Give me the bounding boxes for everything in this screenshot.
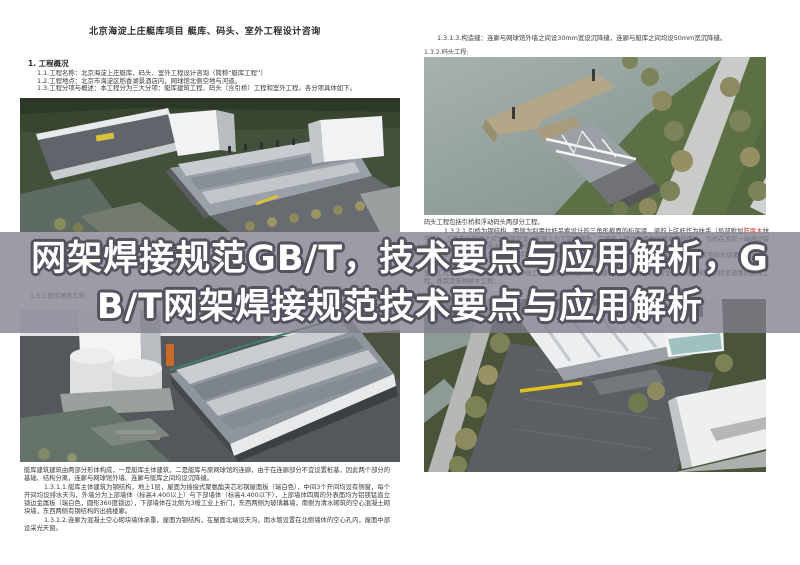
render-aerial-boathouse-site xyxy=(20,98,400,232)
boathouse-description: 艇库建筑建筑由两部分形体构成，一是艇库主体建筑，二是艇库与原网球馆的连廊，由于在… xyxy=(24,467,390,534)
document-viewer: 北京海淀上庄艇库项目 艇库、码头、室外工程设计咨询 1. 工程概况 1.1.工程… xyxy=(0,0,800,565)
overlay-banner: 网架焊接规范GB/T，技术要点与应用解析，G B/T网架焊接规范技术要点与应用解… xyxy=(0,232,800,333)
banner-headline-line2: B/T网架焊接规范技术要点与应用解析 xyxy=(97,283,703,331)
intro-lines: 1.1.工程名称：北京海淀上庄艇库、码头、室外工程设计咨询（简称“艇库工程”） … xyxy=(37,70,387,93)
para-main-building: 1.3.1.1.艇库主体建筑为钢结构，地上1层，屋面为插接式聚氨酯夹芯彩钢屋面板… xyxy=(24,484,390,516)
para-corridor: 1.3.1.2.连廊为混凝土空心砌块墙体承重，屋面为钢结构，在屋面北端设天沟，雨… xyxy=(24,517,390,533)
para-overview: 艇库建筑建筑由两部分形体构成，一是艇库主体建筑，二是艇库与原网球馆的连廊，由于在… xyxy=(24,467,390,483)
render-dock-and-bridge xyxy=(424,57,766,215)
intro-line-scope: 1.3.工程分项与概述：本工程分为三大分项：艇库建筑工程、码头（含引桥）工程和室… xyxy=(37,85,387,93)
label-dock-works: 1.3.2.码头工程: xyxy=(424,47,469,56)
banner-headline-line1: 网架焊接规范GB/T，技术要点与应用解析，G xyxy=(31,235,769,283)
para-dock-overview: 码头工程包括引桥和浮动码头两部分工程。 xyxy=(424,219,769,227)
para-construction-joint: 1.3.1.3.构造缝：连廊与网球馆外墙之间设30mm宽设沉降缝，连廊与艇库之间… xyxy=(437,33,726,42)
page-title: 北京海淀上庄艇库项目 艇库、码头、室外工程设计咨询 xyxy=(0,24,410,37)
section-heading-overview: 1. 工程概况 xyxy=(28,58,69,69)
